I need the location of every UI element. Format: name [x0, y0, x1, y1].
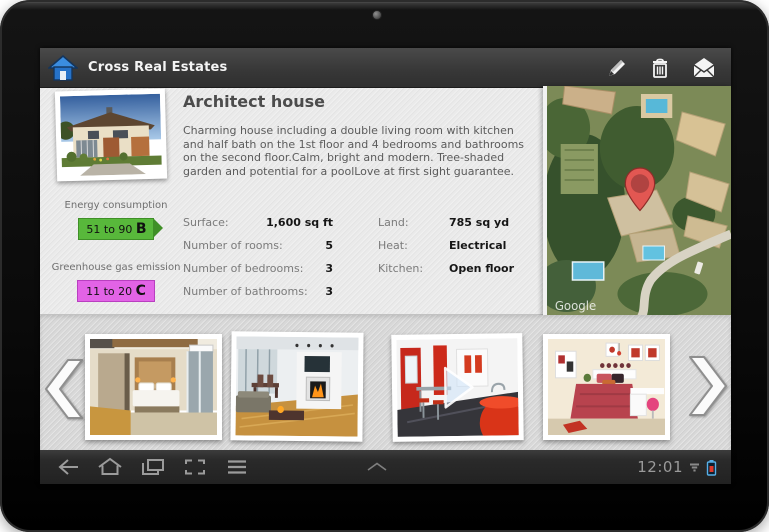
signal-icon [688, 461, 701, 474]
detail-value: 3 [240, 285, 333, 298]
carousel-next-button[interactable] [688, 352, 728, 420]
edit-icon[interactable] [605, 56, 629, 80]
detail-value: 5 [240, 239, 333, 252]
screenshot: Cross Real Estates [0, 0, 769, 532]
back-icon[interactable] [54, 456, 81, 478]
recents-icon[interactable] [139, 456, 167, 478]
carousel-photo-bedroom-modern[interactable] [85, 334, 222, 440]
detail-value: 3 [240, 262, 333, 275]
app-home-icon[interactable] [48, 54, 78, 82]
tablet-screen: Cross Real Estates [40, 48, 731, 484]
satellite-map[interactable]: Google [543, 86, 731, 318]
map-watermark: Google [555, 299, 596, 313]
battery-icon [706, 459, 717, 476]
energy-grade-badge: 51 to 90 B [78, 218, 153, 240]
detail-label: Heat: [378, 239, 408, 252]
property-title: Architect house [183, 92, 325, 111]
status-clock[interactable]: 12:01 [637, 458, 683, 476]
app-title: Cross Real Estates [88, 60, 227, 75]
property-photo[interactable] [55, 89, 167, 182]
detail-value: 1,600 sq ft [240, 216, 333, 229]
carousel-prev-button[interactable] [44, 358, 84, 420]
detail-value: 785 sq yd [449, 216, 509, 229]
detail-value: Electrical [449, 239, 506, 252]
trash-icon[interactable] [649, 56, 671, 80]
property-description: Charming house including a double living… [183, 124, 535, 178]
carousel-photo-kitchen-red[interactable] [391, 333, 523, 442]
ghg-grade-badge: 11 to 20 C [77, 280, 155, 302]
energy-grade-letter: B [136, 221, 147, 237]
expand-icon[interactable] [366, 462, 388, 471]
detail-label: Land: [378, 216, 409, 229]
photo-carousel [40, 315, 731, 450]
carousel-photo-living-room[interactable] [230, 331, 363, 441]
mail-icon[interactable] [691, 57, 717, 79]
ghg-emission-label: Greenhouse gas emission [46, 262, 186, 273]
system-nav-bar: 12:01 [40, 450, 731, 484]
carousel-photo-bedroom-red[interactable] [543, 334, 670, 440]
house-exterior-photo [60, 94, 162, 177]
capture-icon[interactable] [182, 456, 208, 478]
energy-consumption-label: Energy consumption [46, 200, 186, 211]
detail-label: Surface: [183, 216, 229, 229]
detail-value: Open floor [449, 262, 514, 275]
menu-icon[interactable] [223, 456, 251, 478]
detail-label: Kitchen: [378, 262, 423, 275]
tablet-bezel: Cross Real Estates [0, 0, 769, 532]
ghg-grade-letter: C [136, 283, 146, 299]
front-camera [372, 10, 382, 20]
app-bar: Cross Real Estates [40, 48, 731, 88]
home-icon[interactable] [96, 456, 124, 478]
